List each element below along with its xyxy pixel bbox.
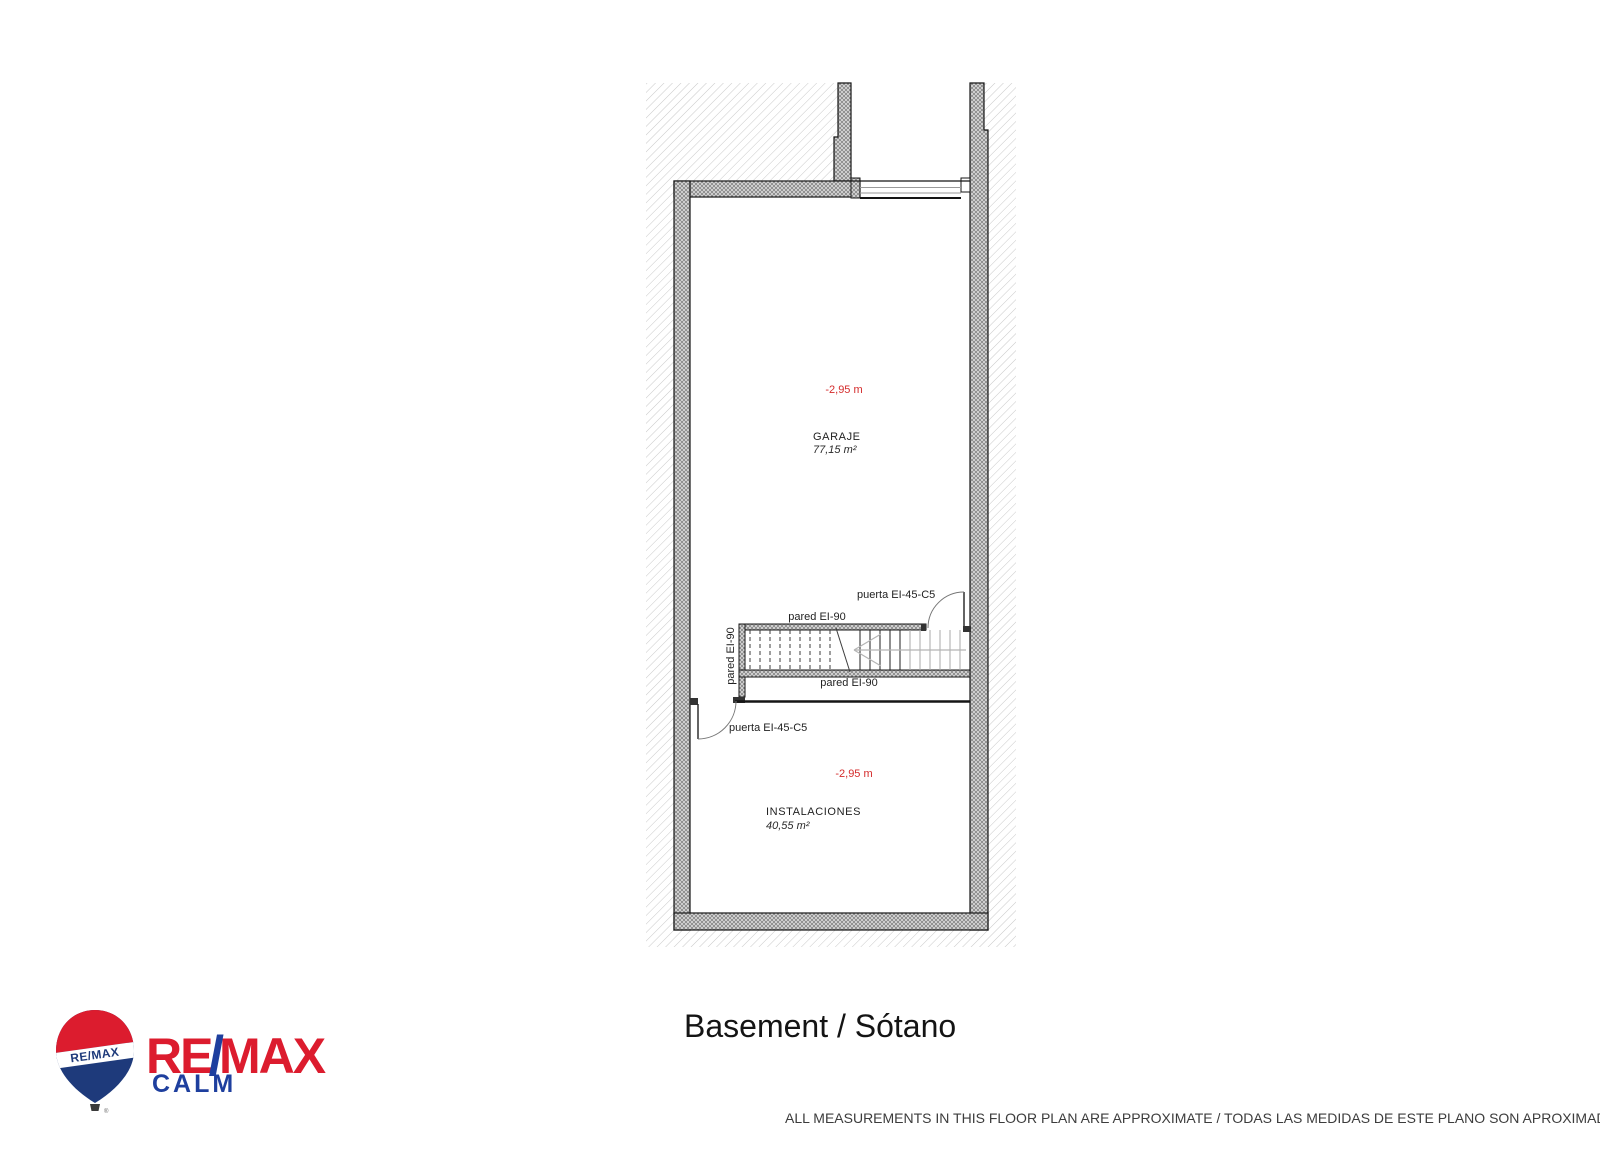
instalaciones-area-label: 40,55 m² — [766, 820, 809, 832]
disclaimer-text: ALL MEASUREMENTS IN THIS FLOOR PLAN ARE … — [785, 1111, 1600, 1125]
door-label-lower: puerta EI-45-C5 — [729, 722, 807, 734]
garage-level-label: -2,95 m — [825, 384, 862, 396]
wall-label-left: pared EI-90 — [725, 627, 737, 684]
floorplan-page: -2,95 m GARAJE 77,15 m² puerta EI-45-C5 … — [0, 0, 1600, 1153]
wall-label-top: pared EI-90 — [788, 611, 845, 623]
door-label-upper: puerta EI-45-C5 — [857, 589, 935, 601]
balloon-basket — [90, 1104, 100, 1111]
garage-area-label: 77,15 m² — [813, 444, 856, 456]
floor-plan-drawing — [0, 0, 1600, 1153]
wall-label-bottom: pared EI-90 — [820, 677, 877, 689]
plan-title: Basement / Sótano — [684, 1010, 956, 1042]
instalaciones-room-label: INSTALACIONES — [766, 806, 861, 818]
driveway-area — [851, 83, 970, 181]
office-name: CALM — [152, 1072, 236, 1097]
registered-mark: ® — [104, 1108, 109, 1115]
garage-room-label: GARAJE — [813, 431, 861, 443]
remax-balloon: RE/MAX ® — [50, 1008, 140, 1116]
instalaciones-level-label: -2,95 m — [835, 768, 872, 780]
